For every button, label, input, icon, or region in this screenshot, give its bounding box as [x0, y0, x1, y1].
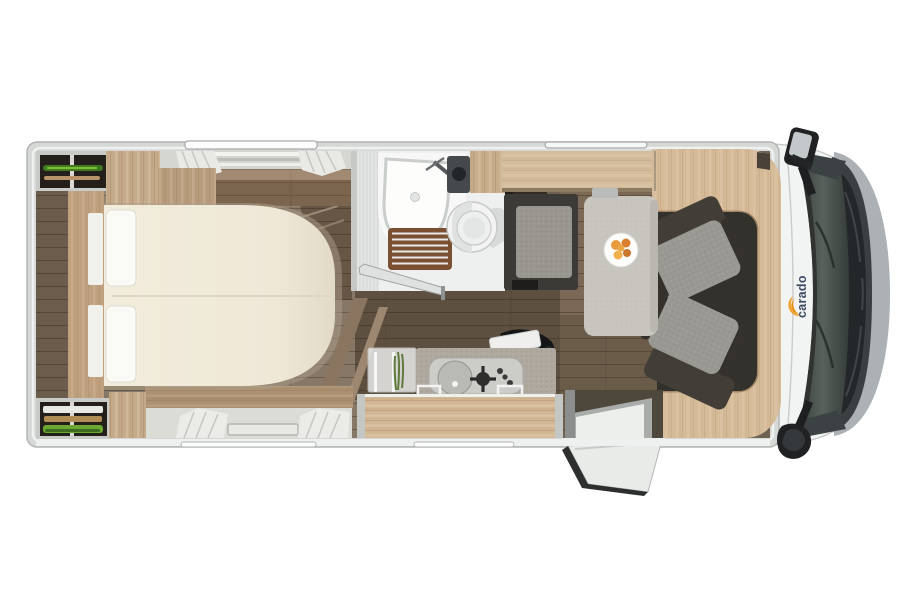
svg-text:carado: carado [795, 275, 809, 318]
